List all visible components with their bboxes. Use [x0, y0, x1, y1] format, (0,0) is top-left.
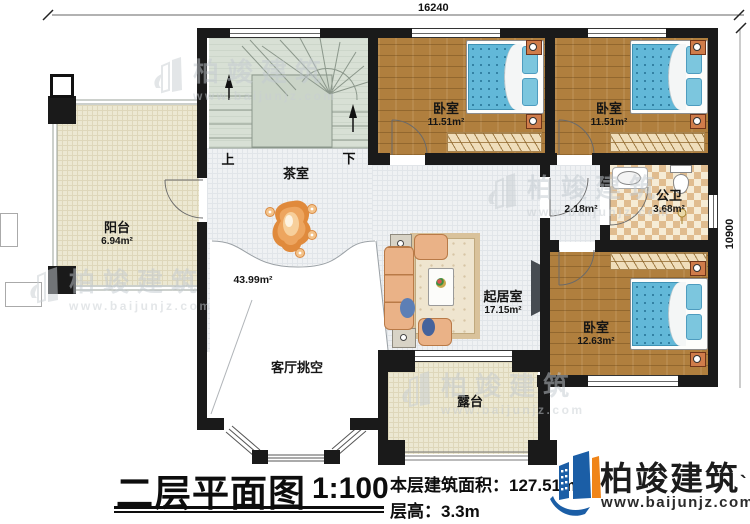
wall	[378, 372, 388, 444]
bed-pillow	[686, 284, 702, 310]
brand-logo-icon	[545, 446, 603, 520]
window	[415, 350, 512, 362]
room-label-terrace: 露台	[457, 395, 483, 410]
brand-name: 柏竣建筑`	[600, 452, 749, 500]
room-label-bathroom: 公卫 3.68m²	[653, 189, 685, 215]
wall	[197, 28, 207, 178]
bed-pillow	[686, 78, 702, 106]
void-area-label: 43.99m²	[233, 275, 272, 287]
wall	[368, 28, 378, 165]
room-label-balcony: 阳台 6.94m²	[101, 221, 133, 247]
bed-blanket-fold	[668, 44, 686, 110]
window	[230, 28, 320, 38]
room-label-void: 客厅挑空	[271, 361, 323, 376]
table-flowers	[436, 278, 446, 288]
nightstand	[526, 40, 542, 55]
nightstand	[690, 40, 706, 55]
floor-height-text: 层高：3.3m	[390, 497, 480, 522]
wall	[595, 240, 718, 252]
wall	[708, 28, 718, 195]
nightstand	[690, 261, 706, 276]
roof-outline-box	[5, 282, 42, 307]
nightstand	[690, 114, 706, 129]
roof-outline-box	[50, 74, 74, 98]
wall	[197, 418, 224, 430]
wall-pillar	[324, 450, 340, 464]
bay-window-glazing	[226, 425, 366, 461]
stair-up-label: 上	[221, 149, 234, 168]
side-table	[392, 328, 416, 348]
wardrobe	[610, 132, 705, 152]
wall-pillar	[252, 450, 268, 464]
wall-pillar	[378, 350, 415, 372]
person-figure	[422, 318, 435, 336]
wall	[537, 375, 588, 387]
brand-url: www.baijunjz.com	[601, 494, 750, 511]
balcony-floor	[57, 105, 199, 285]
dimension-width: 16240	[415, 2, 452, 14]
bed-blanket-fold	[504, 44, 522, 110]
wall	[540, 163, 550, 177]
stairwell-floor	[209, 38, 368, 148]
wall	[600, 163, 610, 187]
room-label-bedroom2: 卧室 11.51m²	[591, 102, 628, 128]
wall-pillar	[378, 440, 405, 465]
room-label-corridor: 2.18m²	[564, 204, 597, 216]
window	[588, 375, 678, 387]
wall-pillar	[48, 266, 76, 294]
bed-blanket-fold	[668, 282, 686, 346]
armchair	[414, 234, 448, 260]
wall	[678, 375, 718, 387]
watermark-logo-icon	[148, 56, 186, 100]
room-label-bedroom3: 卧室 12.63m²	[577, 321, 614, 347]
wall	[350, 418, 380, 430]
nightstand	[690, 352, 706, 367]
floor-plan-canvas: 16240 10900 阳台 6.94m² 上 下 茶室 卧室 11.51m² …	[0, 0, 750, 524]
dimension-depth: 10900	[724, 204, 736, 264]
wall	[538, 387, 548, 444]
title-underline	[114, 506, 384, 509]
room-label-living: 起居室 17.15m²	[483, 290, 522, 316]
bed-pillow	[686, 314, 702, 340]
wall	[592, 153, 718, 165]
title-underline	[114, 511, 384, 513]
person-figure	[400, 298, 415, 318]
wall-pillar	[512, 350, 543, 372]
wall	[425, 153, 557, 165]
wall	[197, 222, 207, 430]
wardrobe	[447, 132, 542, 152]
wall-pillar	[48, 96, 76, 124]
room-label-tearoom: 茶室	[283, 167, 309, 182]
wall	[545, 28, 555, 165]
wall	[540, 240, 559, 252]
window	[708, 195, 718, 228]
bed-pillow	[522, 78, 538, 106]
wall	[368, 153, 390, 165]
bathroom-sink	[612, 167, 648, 189]
stair-down-label: 下	[342, 148, 355, 167]
window	[412, 28, 500, 38]
nightstand	[526, 114, 542, 129]
toilet-tank	[670, 165, 692, 173]
room-label-bedroom1: 卧室 11.51m²	[428, 102, 465, 128]
window	[588, 28, 666, 38]
drawing-scale: 1:100	[312, 472, 389, 506]
roof-outline-box	[0, 213, 18, 247]
